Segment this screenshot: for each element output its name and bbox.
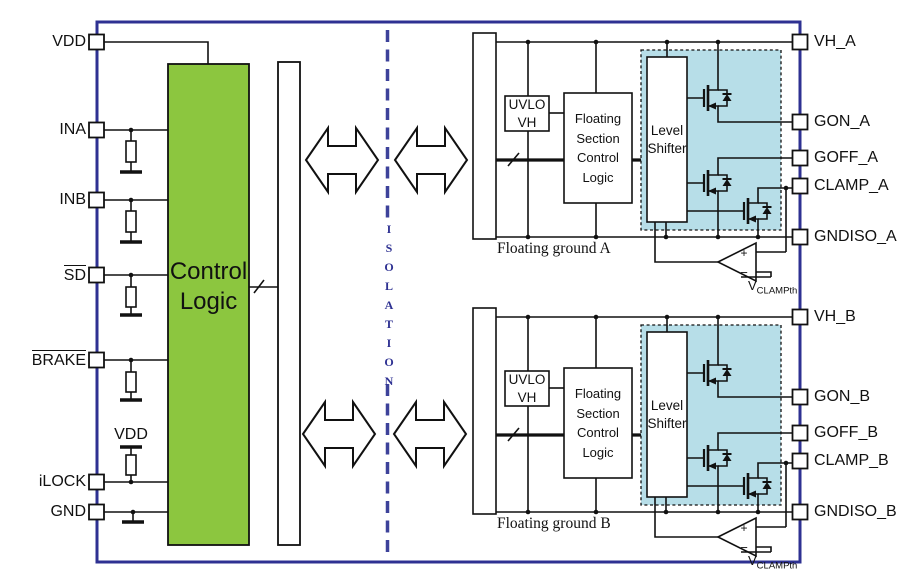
pin-label-gon-b: GON_B [814, 388, 870, 406]
pin-label-gndiso-a: GNDISO_A [814, 228, 897, 246]
level-shifter-label-a: Level Shifter [647, 57, 687, 222]
isolation-label: ISOLATION [380, 222, 396, 393]
vclampth-label-a: VCLAMPth [748, 278, 797, 297]
isolation-interface-block-primary [278, 62, 300, 545]
gate-driver-block-diagram: + − [0, 0, 924, 576]
pin-label-vh-a: VH_A [814, 33, 856, 51]
pin-label-ina: INA [0, 121, 86, 139]
pin-label-goff-b: GOFF_B [814, 424, 878, 442]
vdd-pullup-label: VDD [106, 426, 156, 444]
level-shifter-label-b: Level Shifter [647, 332, 687, 497]
bidirectional-arrow-icon [303, 402, 375, 466]
pin-label-clamp-b: CLAMP_B [814, 452, 889, 470]
control-logic-label: Control Logic [168, 257, 249, 317]
floating-ground-a-label: Floating ground A [497, 240, 611, 258]
floating-section-control-logic-label-a: Floating Section Control Logic [564, 93, 632, 203]
pin-label-inb: INB [0, 191, 86, 209]
bidirectional-arrow-icon [306, 128, 378, 192]
floating-ground-b-label: Floating ground B [497, 515, 611, 533]
pin-label-brake: BRAKE [0, 350, 86, 370]
pin-label-vh-b: VH_B [814, 308, 856, 326]
pin-label-gndiso-b: GNDISO_B [814, 503, 897, 521]
bidirectional-arrow-icon [394, 402, 466, 466]
uvlo-label-b: UVLO VH [505, 371, 549, 406]
pin-label-vdd: VDD [0, 33, 86, 51]
pin-label-gnd: GND [0, 503, 86, 521]
pin-label-ilock: iLOCK [0, 473, 86, 491]
pin-label-clamp-a: CLAMP_A [814, 177, 889, 195]
pin-label-goff-a: GOFF_A [814, 149, 878, 167]
bidirectional-arrow-icon [395, 128, 467, 192]
pin-label-gon-a: GON_A [814, 113, 870, 131]
vclampth-label-b: VCLAMPth [748, 553, 797, 572]
pin-label-sd: SD [0, 265, 86, 285]
floating-section-control-logic-label-b: Floating Section Control Logic [564, 368, 632, 478]
uvlo-label-a: UVLO VH [505, 96, 549, 131]
